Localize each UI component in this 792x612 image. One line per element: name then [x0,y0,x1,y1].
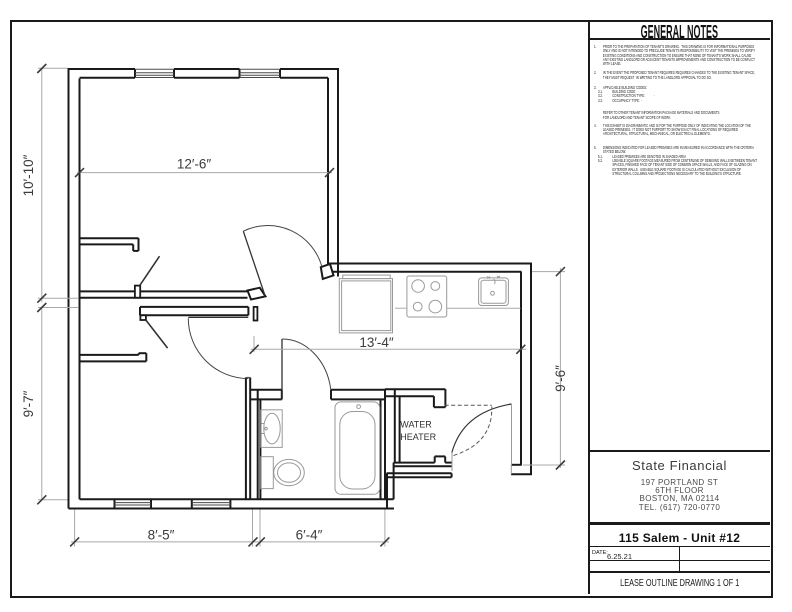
svg-text:WATER: WATER [400,419,432,429]
svg-text:8′-5″: 8′-5″ [148,527,175,542]
svg-text:6′-4″: 6′-4″ [296,527,323,542]
svg-text:13′-4″: 13′-4″ [359,335,394,350]
svg-text:10′-10″: 10′-10″ [21,154,36,196]
svg-text:HEATER: HEATER [400,432,436,442]
svg-text:9′-7″: 9′-7″ [21,390,36,417]
svg-text:12′-6″: 12′-6″ [177,156,212,171]
svg-text:9′-6″: 9′-6″ [553,365,568,392]
